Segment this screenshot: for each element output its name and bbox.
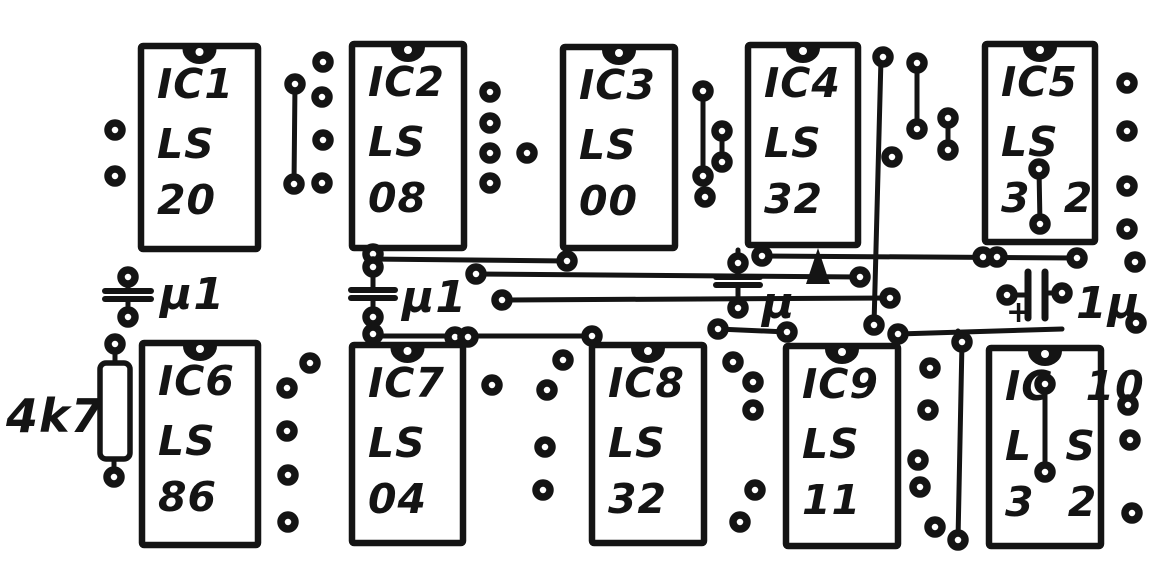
trace: [373, 259, 567, 261]
solder-pad: [108, 169, 122, 183]
ic-label-line: 11: [802, 476, 861, 524]
ic-label-line: IC1: [157, 60, 234, 108]
solder-pad: [1125, 506, 1139, 520]
solder-pad: [107, 470, 121, 484]
ic-label-line: IC3: [579, 61, 656, 109]
solder-pad: [366, 327, 380, 341]
ic-label-line: 04: [368, 475, 427, 523]
solder-pad: [955, 335, 969, 349]
solder-pad: [483, 85, 497, 99]
solder-pad: [867, 318, 881, 332]
solder-pad: [1128, 255, 1142, 269]
solder-pad: [921, 403, 935, 417]
solder-pad: [520, 146, 534, 160]
solder-pad: [1055, 286, 1069, 300]
capacitor-value-label: μ: [760, 278, 795, 329]
solder-pad: [696, 84, 710, 98]
solder-pad: [469, 267, 483, 281]
solder-pad: [540, 383, 554, 397]
solder-pad: [1070, 251, 1084, 265]
solder-pad: [941, 143, 955, 157]
ic-label-line: IC4: [764, 59, 841, 107]
solder-pad: [585, 329, 599, 343]
polarity-plus-mark: +: [1006, 295, 1032, 330]
ic-label-line: LS: [764, 119, 822, 167]
solder-pad: [1120, 124, 1134, 138]
solder-pad: [891, 327, 905, 341]
solder-pad: [483, 176, 497, 190]
ic-label-line: 86: [158, 473, 217, 521]
solder-pad: [366, 310, 380, 324]
solder-pad: [913, 480, 927, 494]
ic-label-line: IC 10: [1005, 362, 1145, 410]
trace: [476, 274, 860, 277]
solder-pad: [1120, 179, 1134, 193]
pin1-notch-hole: [799, 47, 807, 55]
pcb-layout-page: IC1LS20IC2LS08IC3LS00IC4LS32IC5LS3 2IC6L…: [0, 0, 1165, 566]
pin1-notch-hole: [404, 347, 412, 355]
capacitor-value-label: 1μ: [1076, 278, 1141, 329]
solder-pad: [303, 356, 317, 370]
solder-pad: [316, 55, 330, 69]
solder-pad: [910, 56, 924, 70]
solder-pad: [951, 533, 965, 547]
solder-pad: [556, 353, 570, 367]
solder-pad: [715, 124, 729, 138]
solder-pad: [696, 169, 710, 183]
resistor-value-label: 4k7: [5, 389, 104, 443]
resistor-4k7: [100, 344, 130, 477]
solder-pad: [461, 330, 475, 344]
ic-label-line: IC8: [608, 359, 685, 407]
solder-pad: [711, 322, 725, 336]
solder-pad: [280, 381, 294, 395]
solder-pad: [876, 50, 890, 64]
solder-pad: [485, 378, 499, 392]
ic-label-line: LS: [1001, 118, 1059, 166]
solder-pad: [990, 250, 1004, 264]
pin1-notch-hole: [838, 348, 846, 356]
solder-pad: [911, 453, 925, 467]
solder-pad: [108, 337, 122, 351]
solder-pad: [853, 270, 867, 284]
ic-label-line: LS: [158, 417, 216, 465]
trace: [294, 84, 295, 184]
pin1-notch-hole: [1041, 350, 1049, 358]
solder-pad: [755, 249, 769, 263]
trace: [958, 342, 962, 540]
solder-pad: [731, 256, 745, 270]
solder-pad: [536, 483, 550, 497]
pin1-notch-hole: [196, 48, 204, 56]
solder-pad: [560, 254, 574, 268]
solder-pad: [746, 375, 760, 389]
trace: [502, 298, 890, 300]
ic-label-line: IC2: [368, 58, 445, 106]
solder-pad: [495, 293, 509, 307]
ic-label-line: 08: [368, 174, 427, 222]
solder-pad: [910, 122, 924, 136]
solder-pad: [1120, 222, 1134, 236]
solder-pad: [715, 155, 729, 169]
ic-label-line: L S: [1005, 422, 1096, 470]
solder-pad: [928, 520, 942, 534]
pin1-notch-hole: [644, 347, 652, 355]
solder-pad: [883, 291, 897, 305]
ic-label-line: LS: [368, 118, 426, 166]
pin1-notch-hole: [615, 49, 623, 57]
solder-pad: [288, 77, 302, 91]
pin1-notch-hole: [196, 345, 204, 353]
solder-pad: [315, 90, 329, 104]
solder-pad: [1123, 433, 1137, 447]
solder-pad: [748, 483, 762, 497]
up-arrow-icon: [806, 248, 830, 284]
solder-pad: [1120, 76, 1134, 90]
ic-label-line: 20: [157, 176, 216, 224]
solder-pad: [538, 440, 552, 454]
ic-label-line: IC7: [368, 359, 445, 407]
pin1-notch-hole: [404, 46, 412, 54]
solder-pad: [885, 150, 899, 164]
solder-pad: [366, 260, 380, 274]
solder-pad: [316, 133, 330, 147]
ic-label-line: IC9: [802, 360, 879, 408]
ic-label-line: IC5: [1001, 58, 1078, 106]
solder-pad: [280, 424, 294, 438]
trace: [898, 329, 1062, 334]
ic-label-line: 32: [608, 475, 667, 523]
ic-label-line: LS: [579, 121, 637, 169]
solder-pad: [746, 403, 760, 417]
trace: [762, 256, 1077, 258]
ic-label-line: 32: [764, 175, 823, 223]
ic-label-line: LS: [802, 420, 860, 468]
solder-pad: [483, 146, 497, 160]
pin1-notch-hole: [1036, 46, 1044, 54]
capacitor-value-label: μ1: [158, 269, 225, 320]
solder-pad: [923, 361, 937, 375]
ic-label-line: LS: [368, 419, 426, 467]
solder-pad: [698, 190, 712, 204]
ic-label-line: 00: [579, 177, 638, 225]
resistor-body: [100, 363, 130, 459]
solder-pad: [726, 355, 740, 369]
solder-pad: [281, 468, 295, 482]
solder-pad: [941, 111, 955, 125]
ic-label-line: LS: [608, 419, 666, 467]
solder-pad: [315, 176, 329, 190]
pcb-layout-drawing: IC1LS20IC2LS08IC3LS00IC4LS32IC5LS3 2IC6L…: [0, 0, 1165, 566]
solder-pad: [483, 116, 497, 130]
solder-pad: [121, 310, 135, 324]
solder-pad: [287, 177, 301, 191]
ic-label-line: 3 2: [1001, 174, 1093, 222]
ic-label-line: IC6: [158, 357, 235, 405]
capacitor-value-label: μ1: [400, 272, 467, 323]
solder-pad: [108, 123, 122, 137]
solder-pad: [733, 515, 747, 529]
ic-label-line: LS: [157, 120, 215, 168]
trace: [874, 58, 881, 325]
solder-pad: [281, 515, 295, 529]
solder-pad: [121, 270, 135, 284]
solder-pad: [731, 301, 745, 315]
ic-label-line: 3 2: [1005, 478, 1097, 526]
